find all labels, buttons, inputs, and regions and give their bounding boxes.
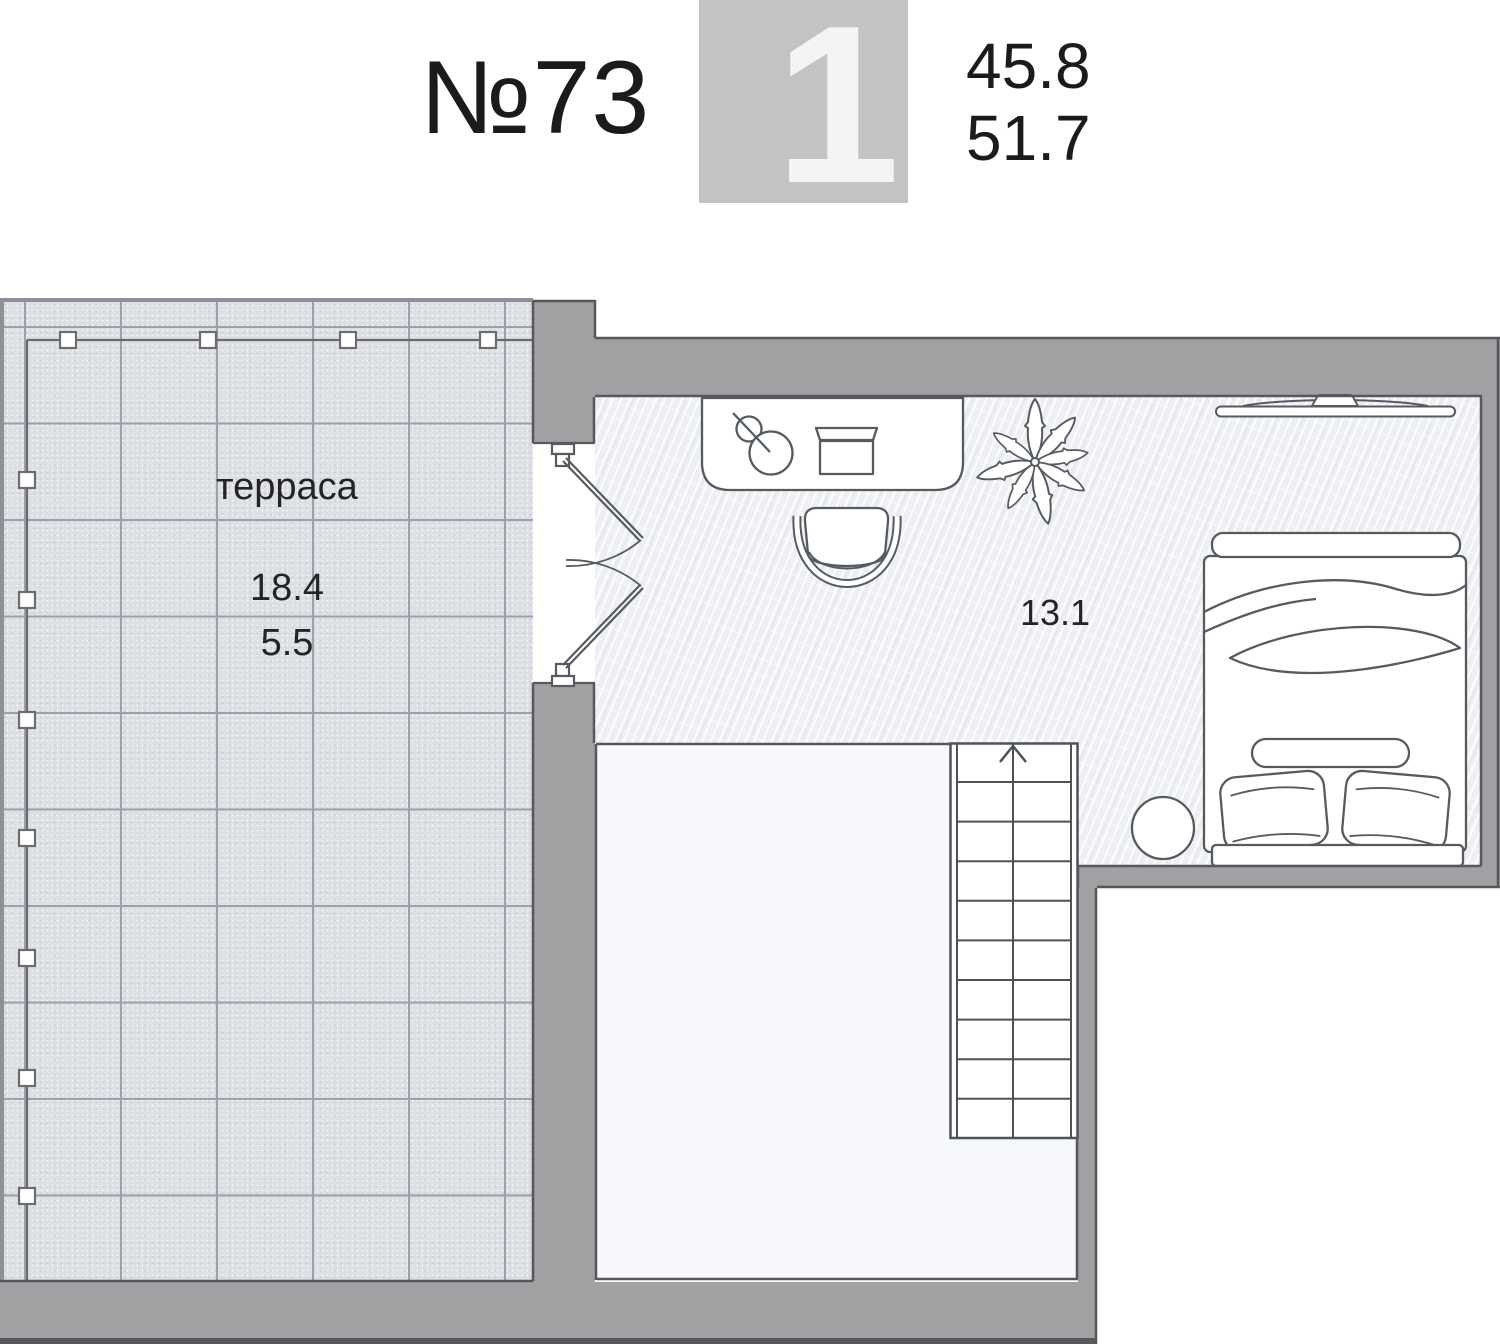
wall-terrace-column-lower xyxy=(533,683,595,1282)
area-total: 51.7 xyxy=(966,102,1091,174)
terrace-area-reduced-value: 5.5 xyxy=(147,622,427,664)
unit-number: №73 xyxy=(420,42,650,154)
wall-bottom xyxy=(0,1282,1097,1338)
staircase xyxy=(951,744,1078,1139)
room-area-value: 13.1 xyxy=(995,592,1115,634)
void-space xyxy=(595,743,1078,1280)
stairs-up-arrow-icon xyxy=(1000,746,1026,762)
rooms-count-digit: 1 xyxy=(775,0,900,217)
wall-void-right xyxy=(1078,888,1097,1282)
terrace-label: терраса xyxy=(147,466,427,508)
area-main: 45.8 xyxy=(966,30,1091,102)
wall-right xyxy=(1482,337,1500,888)
terrace-area-value: 18.4 xyxy=(147,567,427,609)
rooms-count-badge: 1 xyxy=(699,0,908,203)
wall-bedroom-bottom xyxy=(1078,866,1500,888)
wall-top xyxy=(533,337,1500,397)
floor-plan-page: №73 1 45.8 51.7 xyxy=(0,0,1500,1344)
area-figures: 45.8 51.7 xyxy=(966,30,1091,174)
terrace-area xyxy=(0,298,533,1282)
wall-bottom-edge xyxy=(0,1338,1097,1344)
wall-terrace-column-upper xyxy=(533,300,595,443)
